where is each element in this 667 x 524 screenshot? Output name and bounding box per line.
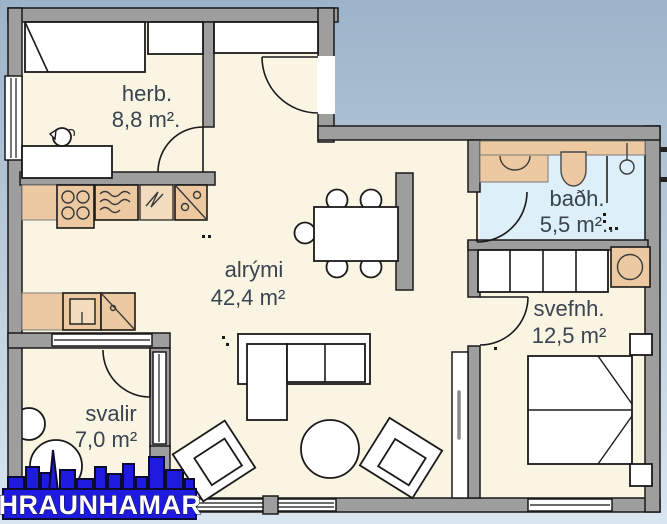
toilet — [561, 152, 586, 186]
label-badh-area: 5,5 m².. — [540, 212, 615, 237]
cooktop — [57, 185, 94, 228]
logo-text: HRAUNHAMAR — [0, 490, 201, 520]
label-alrymi-area: 42,4 m² — [211, 285, 286, 310]
counter-low-unit — [101, 293, 135, 330]
wall-herb-entry — [203, 22, 214, 127]
tick-right-2 — [660, 177, 667, 182]
coffee-table — [301, 420, 359, 478]
sink-low — [63, 293, 101, 330]
nightstand — [630, 464, 652, 486]
entry-closet — [214, 22, 318, 53]
label-svalir: svalir — [85, 401, 136, 426]
label-badh: baðh. — [549, 186, 604, 211]
sofa-seats — [287, 344, 365, 382]
wall-bath-west-upper — [468, 140, 480, 192]
sofa-chaise — [247, 344, 287, 420]
entrance-opening — [317, 56, 335, 114]
label-svefnh: svefnh. — [534, 296, 605, 321]
bedroom-sliding-door — [452, 352, 468, 498]
label-alrymi: alrými — [225, 257, 284, 282]
dining-chair — [295, 223, 316, 244]
wall-right — [645, 126, 660, 512]
dishwasher — [140, 185, 173, 220]
floor-plan-canvas: herb. 8,8 m². alrými 42,4 m² baðh. 5,5 m… — [0, 0, 667, 524]
wall-step-horizontal — [318, 126, 660, 140]
nightstand — [630, 334, 652, 355]
floor-plan: herb. 8,8 m². alrými 42,4 m² baðh. 5,5 m… — [0, 0, 667, 524]
label-herb: herb. — [122, 81, 172, 106]
window-living-mullion — [263, 496, 278, 514]
single-bed — [25, 22, 145, 72]
label-svalir-area: 7,0 m² — [75, 427, 137, 452]
counter-corner-unit — [175, 185, 207, 220]
wall-bedroom-west — [468, 346, 480, 498]
tick-right-1 — [660, 147, 667, 152]
label-herb-area: 8,8 m². — [112, 107, 180, 132]
window-living — [183, 499, 336, 511]
dining-table — [314, 207, 398, 261]
kitchen-sink-unit — [95, 185, 138, 220]
vanity — [480, 155, 548, 182]
washing-machine — [611, 247, 650, 287]
window-left — [5, 76, 22, 160]
wall-top — [8, 8, 338, 22]
herb-closet — [148, 22, 203, 54]
label-svefnh-area: 12,5 m² — [532, 323, 607, 348]
